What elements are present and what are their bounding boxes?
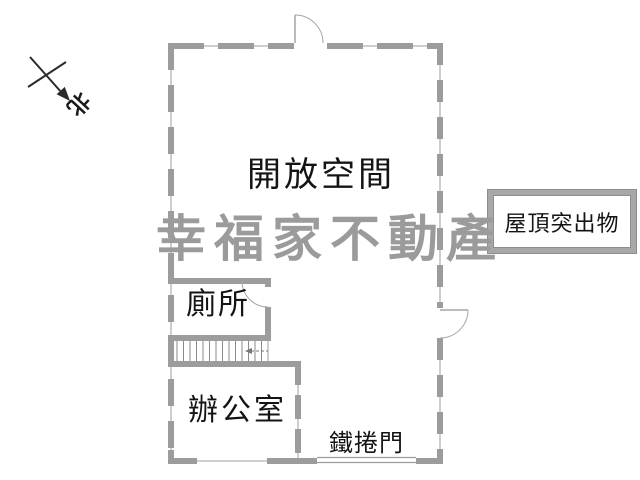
roller-door-lines bbox=[317, 458, 416, 463]
floorplan-page: 開放空間 屋頂突出物 廁所 辦公室 鐵捲門 北 幸福家不動產 bbox=[0, 0, 640, 480]
door-top bbox=[295, 15, 323, 43]
roller-door-label: 鐵捲門 bbox=[329, 432, 404, 456]
toilet-label: 廁所 bbox=[186, 290, 250, 320]
roof-protrusion-label: 屋頂突出物 bbox=[504, 206, 619, 238]
roof-protrusion-box: 屋頂突出物 bbox=[488, 190, 636, 253]
door-right bbox=[440, 310, 468, 338]
office-label: 辦公室 bbox=[188, 396, 287, 426]
open-space-label: 開放空間 bbox=[247, 159, 395, 193]
watermark: 幸福家不動產 bbox=[156, 214, 504, 264]
